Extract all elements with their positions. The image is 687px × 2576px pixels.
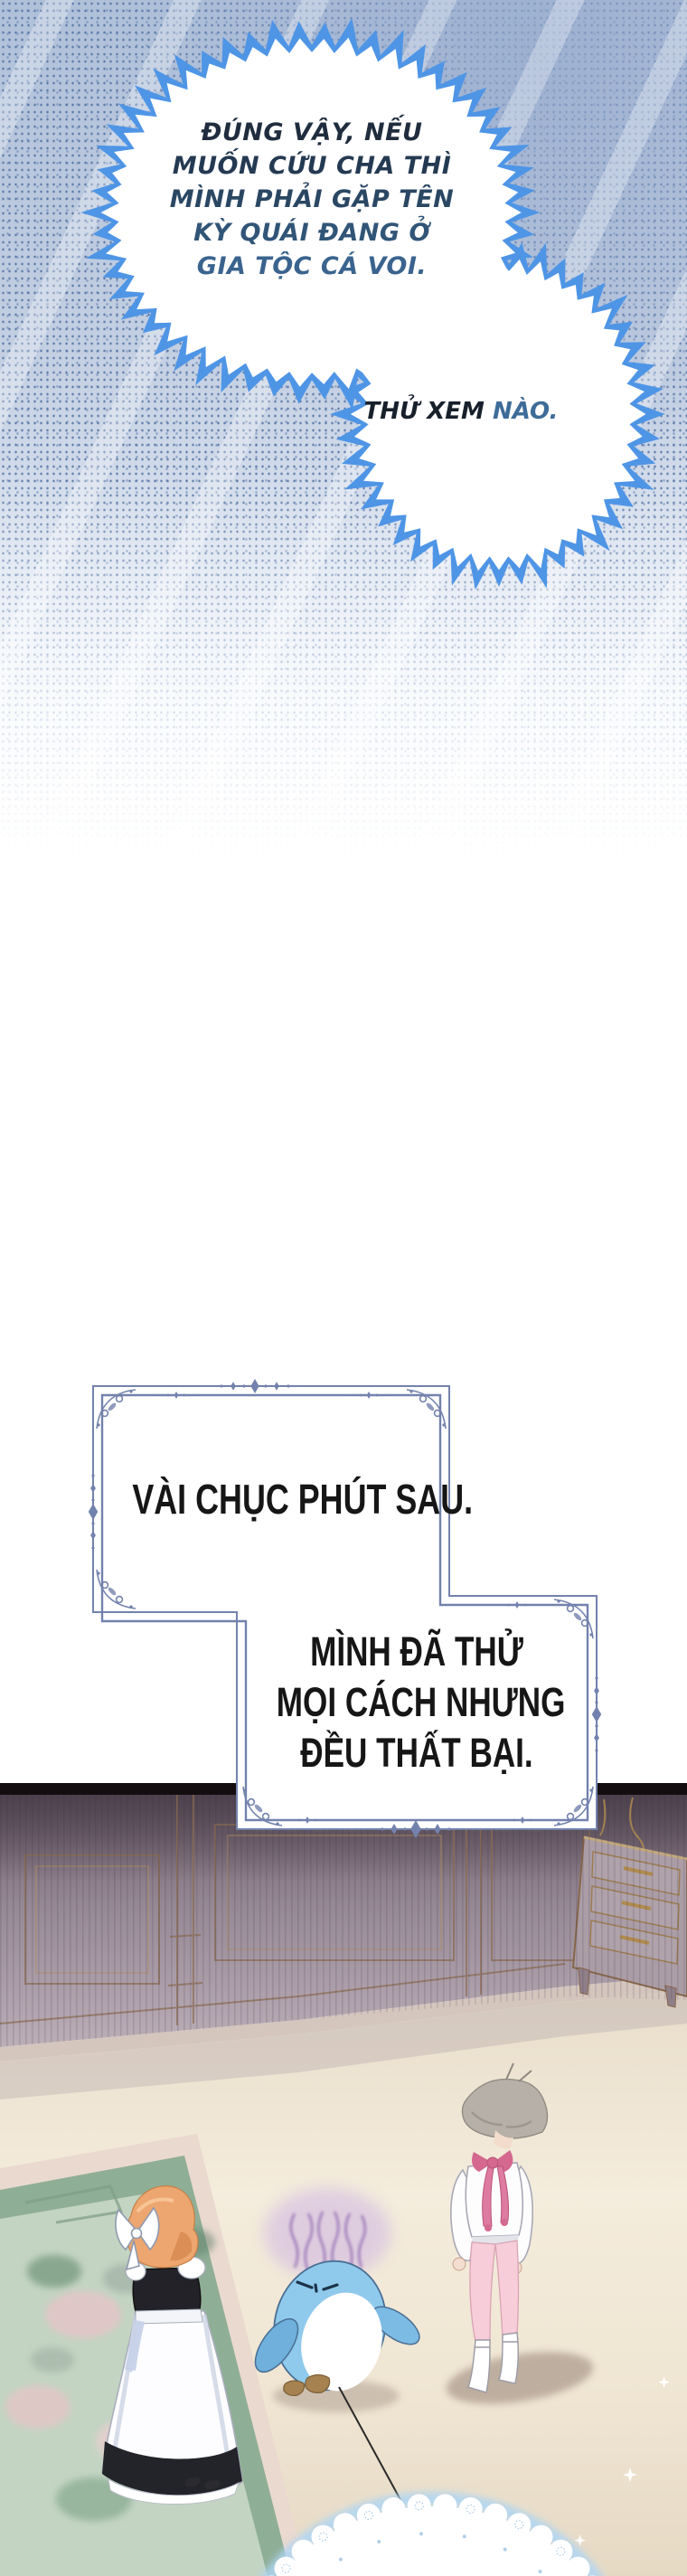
speech-bubble-1-text: ĐÚNG VẬY, NẾU MUỐN CỨU CHA THÌ MÌNH PHẢI… bbox=[108, 116, 515, 283]
speech-line: ĐÚNG VẬY, NẾU bbox=[108, 116, 515, 149]
speech-line: MÌNH PHẢI GẶP TÊN bbox=[108, 183, 515, 216]
speech-line: GIA TỘC CÁ VOI. bbox=[108, 250, 515, 283]
comic-page: ĐÚNG VẬY, NẾU MUỐN CỨU CHA THÌ MÌNH PHẢI… bbox=[0, 0, 687, 2576]
speech-bubble-2-text: THỬ XEM NÀO. bbox=[354, 396, 568, 427]
speech-line: THỬ XEM bbox=[364, 398, 493, 425]
caption-line: MÌNH ĐÃ THỬ bbox=[277, 1627, 557, 1677]
speech-line: NÀO. bbox=[493, 398, 559, 425]
burst-speech-bubbles bbox=[0, 0, 687, 651]
caption-text: VÀI CHỤC PHÚT SAU. bbox=[132, 1476, 473, 1523]
room-panel bbox=[0, 1783, 687, 2576]
caption-line: ĐỀU THẤT BẠI. bbox=[277, 1728, 557, 1779]
caption-line: MỌI CÁCH NHƯNG bbox=[277, 1677, 557, 1728]
caption-box-2: MÌNH ĐÃ THỬ MỌI CÁCH NHƯNG ĐỀU THẤT BẠI. bbox=[277, 1627, 557, 1779]
caption-box-1: VÀI CHỤC PHÚT SAU. bbox=[132, 1476, 409, 1523]
speech-line: MUỐN CỨU CHA THÌ bbox=[108, 149, 515, 183]
speech-line: KỲ QUÁI ĐANG Ở bbox=[108, 216, 515, 250]
